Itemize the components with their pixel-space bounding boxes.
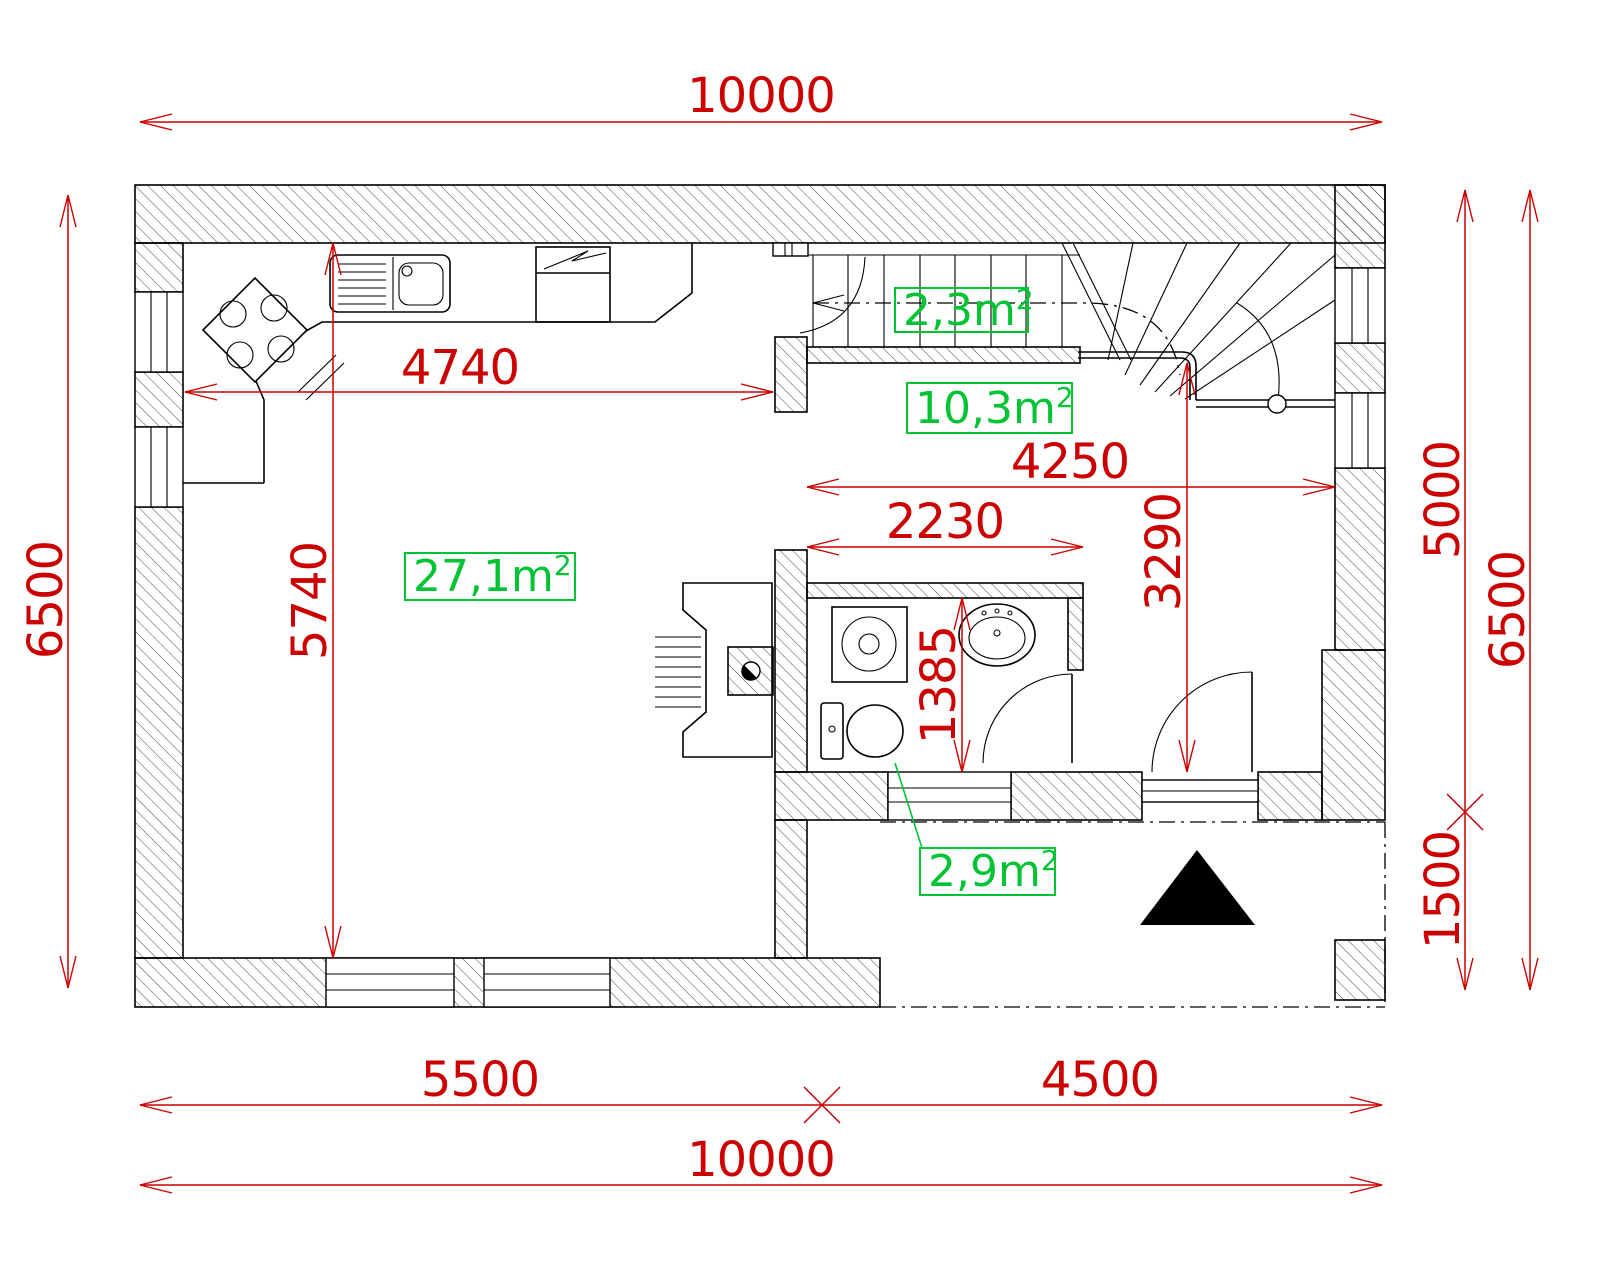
dim-hall-width: 4250 [1011, 434, 1129, 490]
wall-east-seg [1335, 468, 1385, 650]
wall-west-seg [135, 243, 183, 292]
wall-partition-mid [775, 550, 807, 772]
dim-hall-depth: 3290 [1136, 493, 1192, 611]
floorplan-canvas: 2,3m2 10,3m2 27,1m2 2,9m2 10000 4740 574… [0, 0, 1600, 1280]
window-east-2 [1335, 393, 1385, 468]
counter-left-return [183, 381, 264, 483]
window-west-2 [135, 427, 183, 507]
svg-text:27,1m2: 27,1m2 [413, 549, 572, 602]
kitchen-sink [330, 255, 450, 312]
svg-text:10,3m2: 10,3m2 [915, 381, 1074, 434]
window-south-2 [484, 958, 610, 1007]
dim-bottom-left: 5500 [421, 1052, 539, 1108]
area-label-under-stairs: 2,3m2 [895, 283, 1034, 336]
entrance-threshold [1142, 780, 1258, 802]
dim-right-upper: 5000 [1415, 441, 1471, 559]
dim-left-total: 6500 [18, 541, 74, 659]
dim-bath-depth: 1385 [911, 626, 967, 744]
stair-handrail [1078, 352, 1196, 400]
closet-door [800, 257, 865, 333]
dim-kitchen-run: 4740 [401, 340, 519, 396]
wall-partition-stub [775, 337, 807, 412]
dim-bottom-total: 10000 [687, 1132, 835, 1188]
dim-right-outer: 6500 [1480, 551, 1536, 669]
wall-stair-stringer [807, 347, 1080, 363]
lightning-icon [544, 251, 606, 269]
winder-guide-arc [1237, 303, 1279, 400]
wall-bath-east [1068, 598, 1083, 670]
entrance-triangle-marker [1140, 850, 1255, 925]
wall-hall-south [1258, 772, 1322, 820]
wall-top [135, 185, 1385, 243]
dim-right-lower: 1500 [1415, 831, 1471, 949]
wall-bath-south [1011, 772, 1142, 820]
cooktop [203, 278, 344, 400]
wall-west-seg [135, 372, 183, 427]
window-west-1 [135, 292, 183, 372]
newel-post [1268, 395, 1286, 413]
area-label-hall: 10,3m2 [907, 381, 1074, 434]
dim-living-depth: 5740 [282, 542, 338, 660]
svg-text:2,9m2: 2,9m2 [928, 844, 1059, 897]
wall-notch [773, 243, 808, 256]
washing-machine [832, 607, 907, 682]
wall-east-seg [1335, 185, 1385, 268]
dim-bath-width: 2230 [886, 494, 1004, 550]
wall-bath-south [775, 772, 888, 820]
bathroom-door [983, 674, 1072, 763]
fireplace [655, 583, 773, 757]
hearth-grille [655, 637, 701, 707]
washbasin [959, 604, 1035, 666]
counter-top-run [306, 243, 692, 331]
window-south-1 [326, 958, 454, 1007]
dim-bottom-right: 4500 [1041, 1052, 1159, 1108]
entrance-door [1152, 672, 1252, 772]
floorplan-page: 2,3m2 10,3m2 27,1m2 2,9m2 10000 4740 574… [0, 0, 1600, 1280]
electric-appliance [536, 247, 610, 322]
wall-partition-low [775, 820, 807, 958]
wall-east-seg [1335, 343, 1385, 393]
dim-top-total: 10000 [687, 68, 835, 124]
area-label-living-kitchen: 27,1m2 [405, 549, 575, 602]
wall-west-seg [135, 507, 183, 958]
porch-column [1335, 940, 1385, 1000]
wall-east-lower [1322, 650, 1385, 820]
svg-text:2,3m2: 2,3m2 [903, 283, 1034, 336]
wall-bath-north [807, 583, 1083, 598]
toilet [821, 703, 903, 759]
window-east-1 [1335, 268, 1385, 343]
window-bath-south [888, 772, 1011, 820]
